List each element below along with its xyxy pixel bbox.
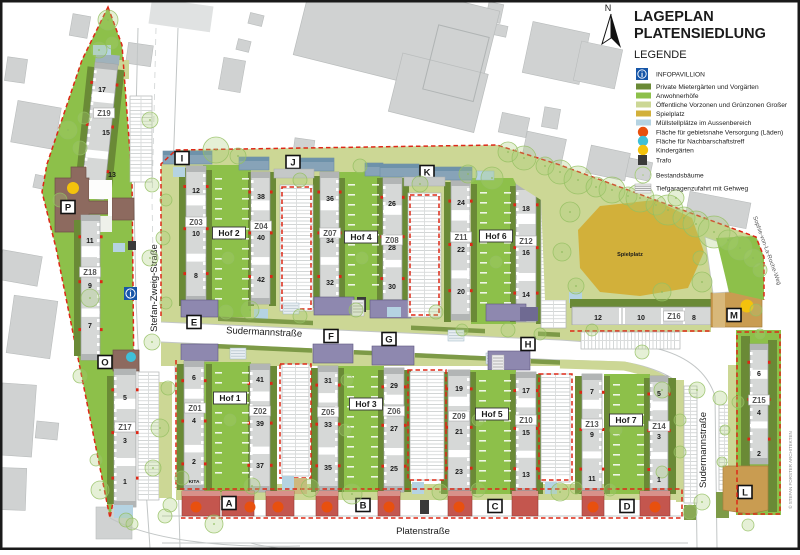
svg-text:LAGEPLAN: LAGEPLAN — [634, 9, 714, 25]
svg-text:Z13: Z13 — [585, 420, 599, 429]
svg-text:25: 25 — [390, 466, 398, 473]
svg-text:41: 41 — [256, 377, 264, 384]
svg-text:42: 42 — [257, 277, 265, 284]
svg-text:Z16: Z16 — [667, 312, 681, 321]
svg-text:Platenstraße: Platenstraße — [396, 526, 450, 537]
svg-text:Z02: Z02 — [253, 407, 267, 416]
svg-text:38: 38 — [257, 194, 265, 201]
svg-text:E: E — [191, 317, 197, 328]
svg-text:L: L — [742, 487, 748, 498]
svg-text:Trafo: Trafo — [656, 158, 671, 165]
svg-text:Z09: Z09 — [452, 412, 466, 421]
svg-text:32: 32 — [326, 280, 334, 287]
svg-text:39: 39 — [256, 421, 264, 428]
svg-text:13: 13 — [108, 172, 116, 179]
svg-text:Z07: Z07 — [323, 229, 336, 238]
svg-text:10: 10 — [192, 231, 200, 238]
svg-text:23: 23 — [455, 469, 463, 476]
svg-text:Hof 7: Hof 7 — [615, 415, 637, 425]
svg-text:Z11: Z11 — [454, 233, 468, 242]
svg-text:Hof 6: Hof 6 — [485, 231, 507, 241]
svg-text:6: 6 — [192, 375, 196, 382]
svg-text:28: 28 — [388, 245, 396, 252]
svg-text:34: 34 — [326, 238, 334, 245]
svg-text:13: 13 — [522, 472, 530, 479]
svg-text:Fläche für Nachbarschaftstreff: Fläche für Nachbarschaftstreff — [656, 139, 744, 146]
svg-text:37: 37 — [256, 463, 264, 470]
svg-text:15: 15 — [102, 130, 110, 137]
svg-text:16: 16 — [522, 250, 530, 257]
svg-text:29: 29 — [390, 383, 398, 390]
svg-text:i: i — [641, 70, 643, 79]
svg-text:40: 40 — [257, 235, 265, 242]
svg-text:7: 7 — [590, 389, 594, 396]
svg-text:Kindergärten: Kindergärten — [656, 148, 694, 155]
svg-text:Z05: Z05 — [321, 408, 335, 417]
svg-text:22: 22 — [457, 247, 465, 254]
svg-text:Tiefgaragenzufahrt mit Gehweg: Tiefgaragenzufahrt mit Gehweg — [656, 186, 748, 193]
svg-text:Z18: Z18 — [83, 268, 97, 277]
svg-text:1: 1 — [123, 479, 127, 486]
svg-text:Hof 3: Hof 3 — [355, 399, 377, 409]
svg-text:3: 3 — [123, 438, 127, 445]
svg-text:2: 2 — [757, 451, 761, 458]
svg-text:D: D — [624, 501, 631, 512]
svg-text:Z06: Z06 — [387, 407, 401, 416]
svg-text:Bestandsbäume: Bestandsbäume — [656, 173, 704, 180]
svg-text:PLATENSIEDLUNG: PLATENSIEDLUNG — [634, 26, 766, 42]
svg-text:14: 14 — [522, 292, 530, 299]
svg-text:M: M — [730, 310, 738, 321]
svg-text:H: H — [525, 339, 532, 350]
svg-text:Z15: Z15 — [752, 396, 766, 405]
svg-text:6: 6 — [757, 371, 761, 378]
svg-text:O: O — [101, 357, 108, 368]
svg-text:Fläche für gebietsnahe Versorg: Fläche für gebietsnahe Versorgung (Läden… — [656, 130, 783, 137]
svg-text:12: 12 — [594, 315, 602, 322]
svg-text:27: 27 — [390, 426, 398, 433]
svg-text:Sudermannstraße: Sudermannstraße — [698, 412, 709, 488]
svg-text:5: 5 — [123, 395, 127, 402]
svg-text:C: C — [492, 501, 499, 512]
svg-text:21: 21 — [455, 429, 463, 436]
svg-text:Z12: Z12 — [519, 237, 533, 246]
svg-text:INFOPAVILLION: INFOPAVILLION — [656, 72, 705, 79]
svg-text:Hof 4: Hof 4 — [350, 232, 372, 242]
svg-text:G: G — [385, 334, 392, 345]
svg-text:B: B — [360, 500, 367, 511]
svg-text:11: 11 — [588, 476, 596, 483]
svg-text:Z08: Z08 — [385, 236, 399, 245]
svg-text:18: 18 — [522, 206, 530, 213]
svg-text:Hof 1: Hof 1 — [219, 393, 241, 403]
svg-text:i: i — [129, 290, 131, 299]
svg-text:Z17: Z17 — [118, 423, 131, 432]
svg-text:24: 24 — [457, 200, 465, 207]
svg-text:7: 7 — [88, 323, 92, 330]
svg-text:Z19: Z19 — [97, 109, 111, 118]
svg-text:5: 5 — [657, 391, 661, 398]
svg-text:26: 26 — [388, 201, 396, 208]
svg-text:Hof 2: Hof 2 — [218, 228, 240, 238]
svg-text:Z04: Z04 — [254, 222, 268, 231]
svg-text:12: 12 — [192, 188, 200, 195]
svg-text:2: 2 — [192, 459, 196, 466]
svg-text:J: J — [290, 157, 295, 168]
svg-text:A: A — [226, 498, 233, 509]
svg-text:17: 17 — [522, 388, 530, 395]
svg-text:19: 19 — [455, 386, 463, 393]
svg-text:1: 1 — [657, 477, 661, 484]
svg-text:31: 31 — [324, 378, 332, 385]
svg-text:Öffentliche Vorzonen und Grünz: Öffentliche Vorzonen und Grünzonen Große… — [656, 101, 788, 109]
svg-text:4: 4 — [757, 410, 761, 417]
svg-text:I: I — [181, 153, 184, 164]
svg-text:17: 17 — [98, 87, 106, 94]
svg-text:9: 9 — [590, 432, 594, 439]
svg-text:Private Mietergärten und Vorgä: Private Mietergärten und Vorgärten — [656, 84, 759, 91]
svg-text:20: 20 — [457, 289, 465, 296]
svg-text:Z01: Z01 — [188, 404, 202, 413]
svg-text:N: N — [605, 3, 612, 13]
svg-text:3: 3 — [657, 434, 661, 441]
svg-text:Z03: Z03 — [189, 218, 203, 227]
svg-text:36: 36 — [326, 196, 334, 203]
svg-text:9: 9 — [88, 283, 92, 290]
svg-text:8: 8 — [194, 273, 198, 280]
svg-text:© STEFAN FORSTER ARCHITEKTEN: © STEFAN FORSTER ARCHITEKTEN — [787, 431, 793, 509]
svg-text:33: 33 — [324, 422, 332, 429]
svg-text:P: P — [65, 202, 72, 213]
svg-text:KITA: KITA — [189, 479, 200, 485]
svg-text:30: 30 — [388, 284, 396, 291]
svg-text:11: 11 — [86, 238, 94, 245]
svg-text:10: 10 — [637, 315, 645, 322]
svg-text:35: 35 — [324, 465, 332, 472]
svg-text:Spielplatz: Spielplatz — [617, 252, 643, 258]
svg-text:Anwohnerhöfe: Anwohnerhöfe — [656, 93, 699, 100]
svg-text:Müllstellplätze im Aussenberei: Müllstellplätze im Aussenbereich — [656, 120, 752, 127]
svg-text:Z10: Z10 — [519, 416, 533, 425]
svg-text:F: F — [328, 331, 334, 342]
svg-text:4: 4 — [192, 418, 196, 425]
svg-text:Spielplatz: Spielplatz — [656, 111, 685, 118]
svg-text:8: 8 — [692, 315, 696, 322]
svg-text:Hof 5: Hof 5 — [481, 409, 503, 419]
svg-text:15: 15 — [522, 430, 530, 437]
svg-text:Z14: Z14 — [652, 422, 666, 431]
svg-text:LEGENDE: LEGENDE — [634, 49, 687, 61]
